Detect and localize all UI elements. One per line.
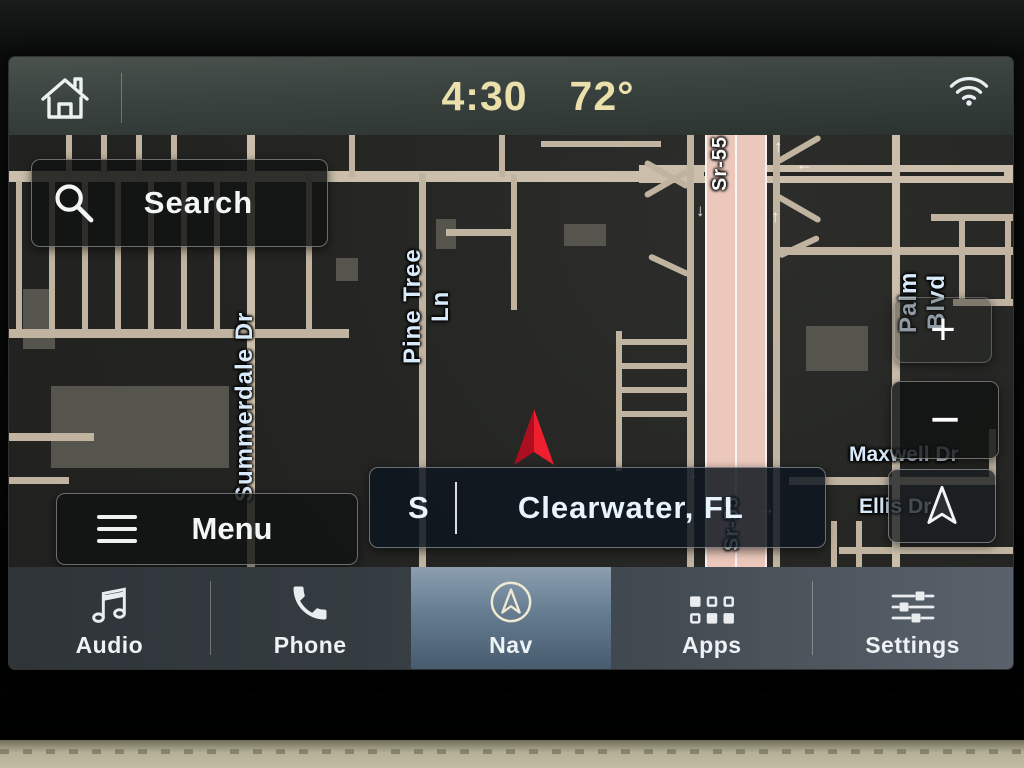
map-road xyxy=(831,521,837,567)
tab-settings[interactable]: Settings xyxy=(812,567,1013,669)
lane-arrow-icon: ↓ xyxy=(696,201,705,221)
temperature: 72° xyxy=(570,73,635,120)
map-ramp xyxy=(776,193,822,223)
search-icon xyxy=(52,181,96,225)
map-building xyxy=(564,224,606,246)
map-road xyxy=(617,411,691,417)
nav-compass-icon xyxy=(488,577,534,625)
map-building xyxy=(806,326,868,371)
map-road xyxy=(9,329,349,338)
street-label: Pine Tree Ln xyxy=(399,231,427,381)
map-road xyxy=(931,214,1013,221)
map-road xyxy=(541,141,661,147)
status-bar-divider xyxy=(121,73,122,123)
north-arrow-icon xyxy=(920,484,964,528)
map-road xyxy=(616,331,622,471)
settings-sliders-icon xyxy=(891,577,935,625)
minus-icon: − xyxy=(930,390,960,450)
dashboard-photo: 4:30 72° xyxy=(0,0,1024,768)
apps-grid-icon xyxy=(689,577,735,625)
map-building xyxy=(336,258,358,281)
tab-phone[interactable]: Phone xyxy=(210,567,411,669)
leather-stitching xyxy=(0,749,1024,754)
zoom-out-button[interactable]: − xyxy=(891,381,999,459)
menu-button[interactable]: Menu xyxy=(56,493,358,565)
dashboard-leather-trim xyxy=(0,740,1024,768)
current-location: Clearwater, FL xyxy=(457,490,805,526)
heading-direction: S xyxy=(408,490,429,526)
hamburger-icon xyxy=(97,515,137,543)
lane-arrow-icon: ↑ xyxy=(771,207,780,227)
clock: 4:30 xyxy=(441,73,527,120)
map-road xyxy=(446,229,516,236)
search-label: Search xyxy=(96,185,301,221)
compass-button[interactable] xyxy=(888,469,996,543)
lane-arrow-icon: ↑ xyxy=(774,137,783,157)
map-road xyxy=(349,135,355,177)
wifi-icon xyxy=(947,73,991,112)
map-road xyxy=(9,433,94,441)
phone-icon xyxy=(288,577,332,625)
tab-bar: Audio Phone Nav xyxy=(9,567,1013,669)
map-road xyxy=(617,363,691,369)
tab-audio[interactable]: Audio xyxy=(9,567,210,669)
map-road xyxy=(617,387,691,393)
map-road xyxy=(839,547,1013,554)
map-road xyxy=(16,181,22,333)
map-canvas[interactable]: ↑ ← ↑ ↓ ↓ → Summerdale Dr Pine Tree Ln S… xyxy=(9,135,1013,567)
map-road xyxy=(511,175,517,310)
menu-label: Menu xyxy=(137,511,327,547)
status-bar: 4:30 72° xyxy=(9,57,1013,135)
map-road xyxy=(499,135,505,177)
zoom-in-button[interactable]: + xyxy=(894,297,992,363)
home-icon xyxy=(40,75,90,121)
plus-icon: + xyxy=(930,305,956,355)
map-road xyxy=(959,214,965,306)
music-note-icon xyxy=(88,577,130,625)
map-road xyxy=(1005,214,1011,306)
vehicle-position-arrow xyxy=(506,407,562,476)
home-button[interactable] xyxy=(35,72,95,124)
tab-apps[interactable]: Apps xyxy=(611,567,812,669)
lane-arrow-icon: ← xyxy=(796,155,813,175)
search-button[interactable]: Search xyxy=(31,159,328,247)
map-ramp xyxy=(648,253,690,277)
map-building xyxy=(51,386,229,468)
sync-touchscreen: 4:30 72° xyxy=(8,56,1014,670)
street-label: Sr-55 xyxy=(709,135,735,193)
location-bar[interactable]: S Clearwater, FL xyxy=(369,467,826,548)
map-road xyxy=(856,521,862,567)
map-road xyxy=(9,477,69,484)
map-road xyxy=(617,339,691,345)
tab-nav[interactable]: Nav xyxy=(411,567,612,669)
